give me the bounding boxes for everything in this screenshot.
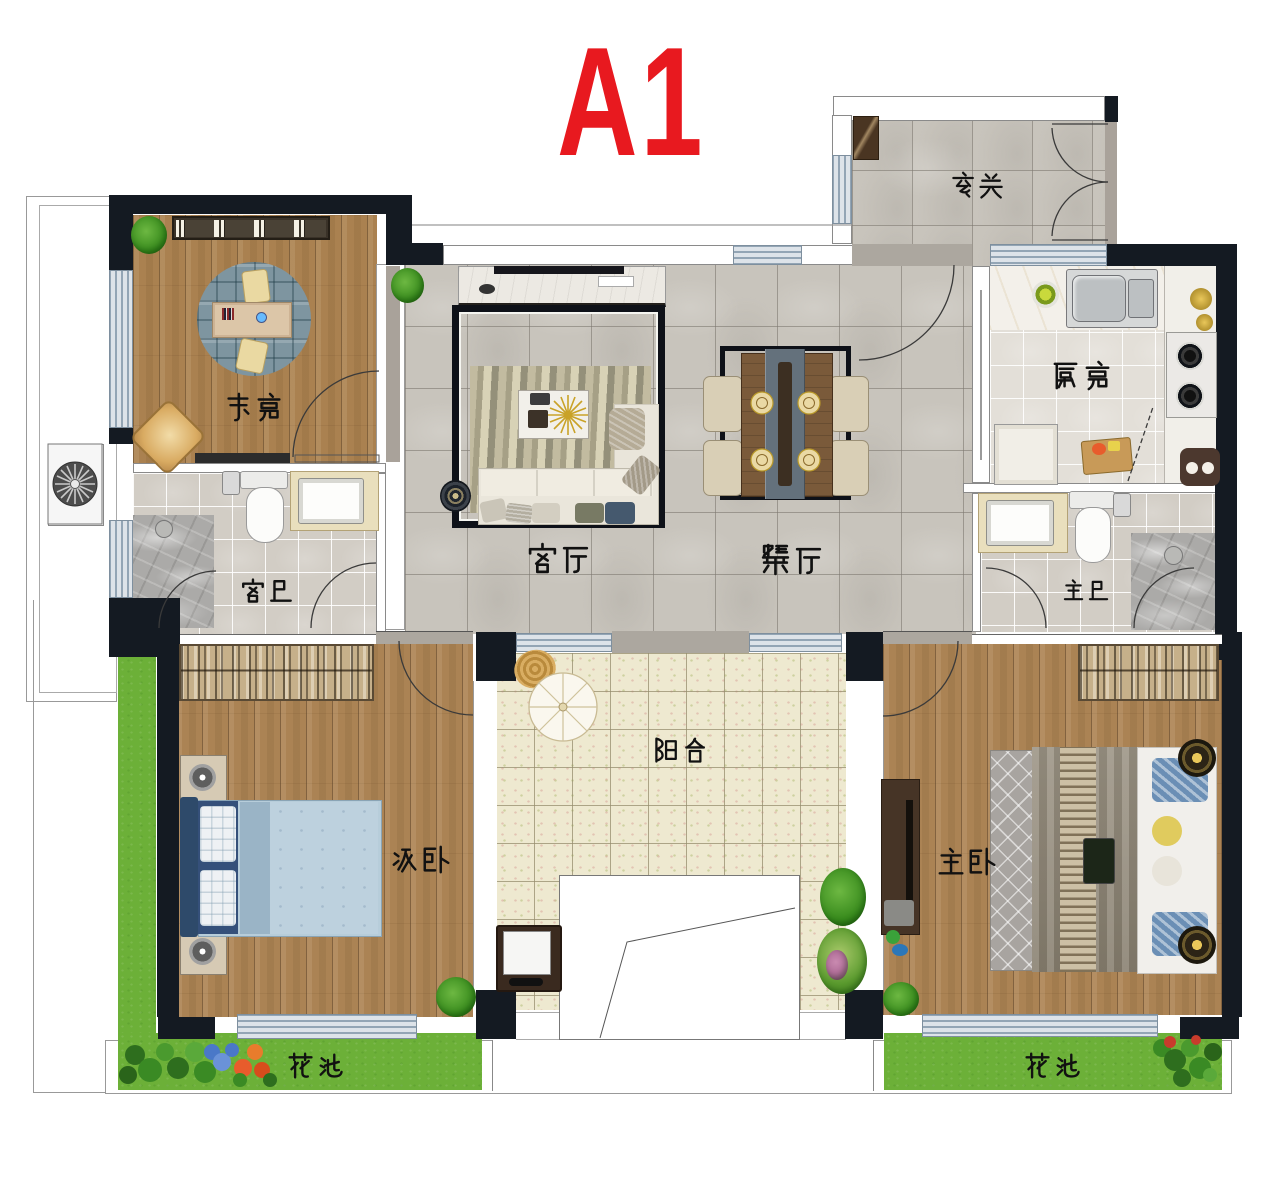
svg-text:A1: A1: [557, 15, 705, 188]
